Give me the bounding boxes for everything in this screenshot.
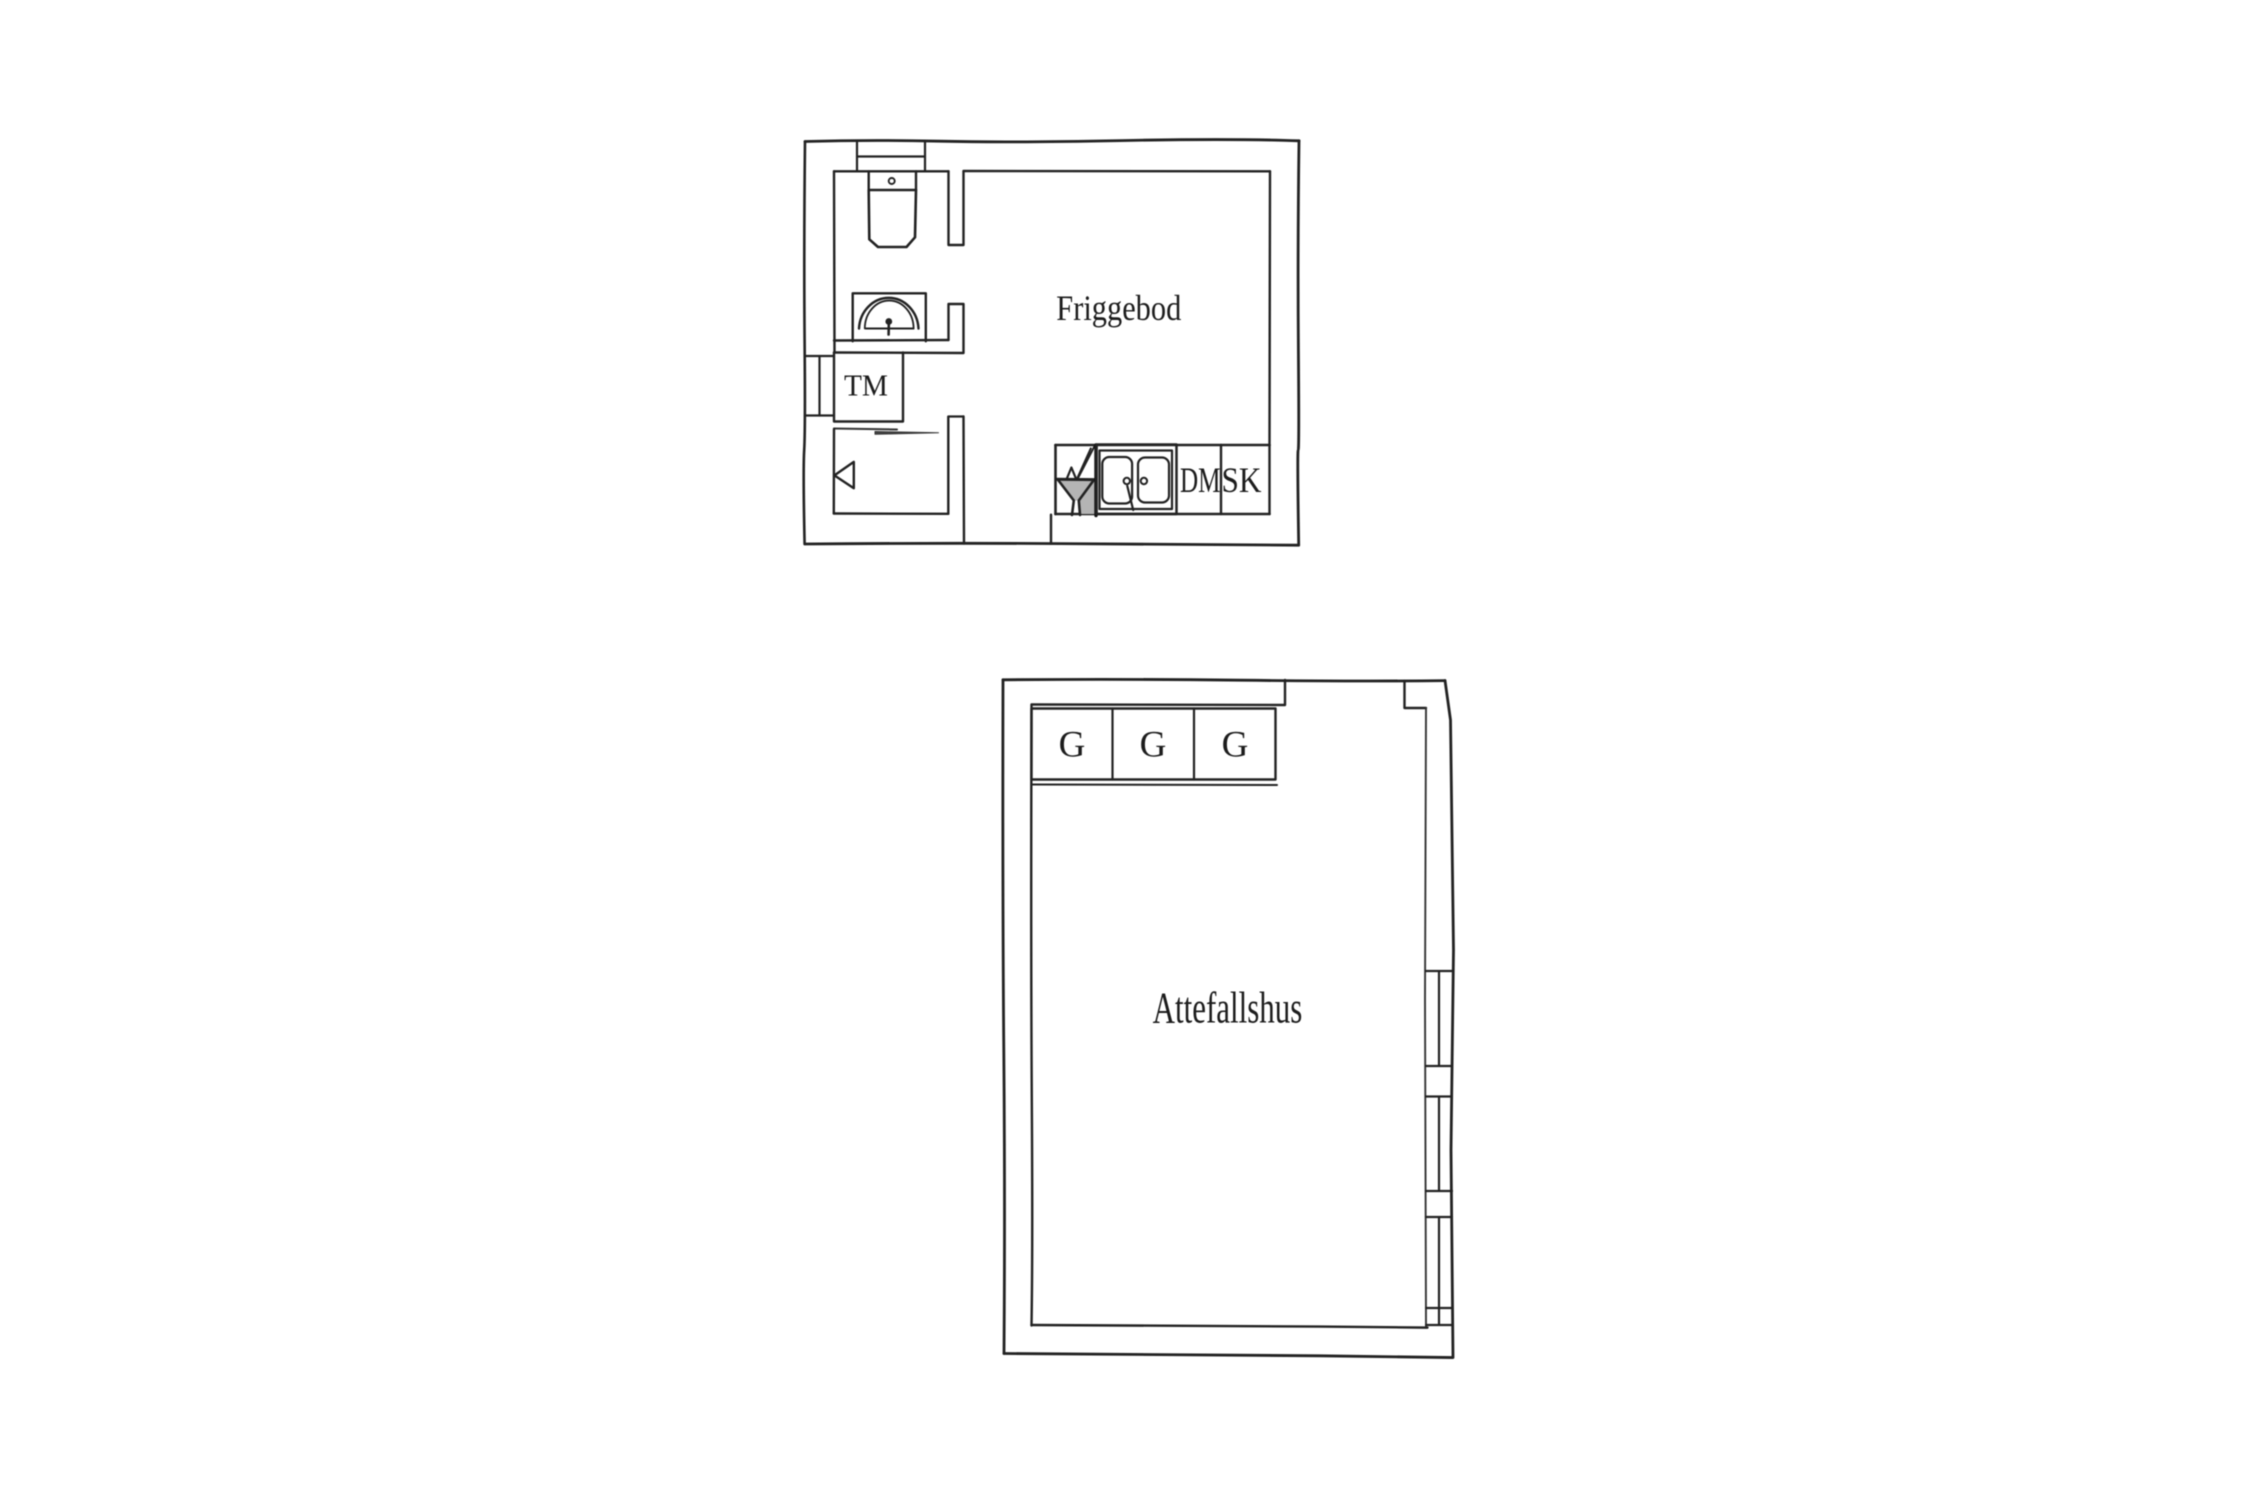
svg-text:G: G xyxy=(1059,725,1086,766)
svg-text:Attefallshus: Attefallshus xyxy=(1153,983,1303,1032)
svg-text:DM: DM xyxy=(1180,460,1221,500)
svg-text:TM: TM xyxy=(844,369,888,403)
svg-text:Friggebod: Friggebod xyxy=(1056,288,1181,328)
svg-text:G: G xyxy=(1140,725,1167,766)
svg-text:G: G xyxy=(1222,725,1249,766)
svg-text:SK: SK xyxy=(1222,460,1262,500)
